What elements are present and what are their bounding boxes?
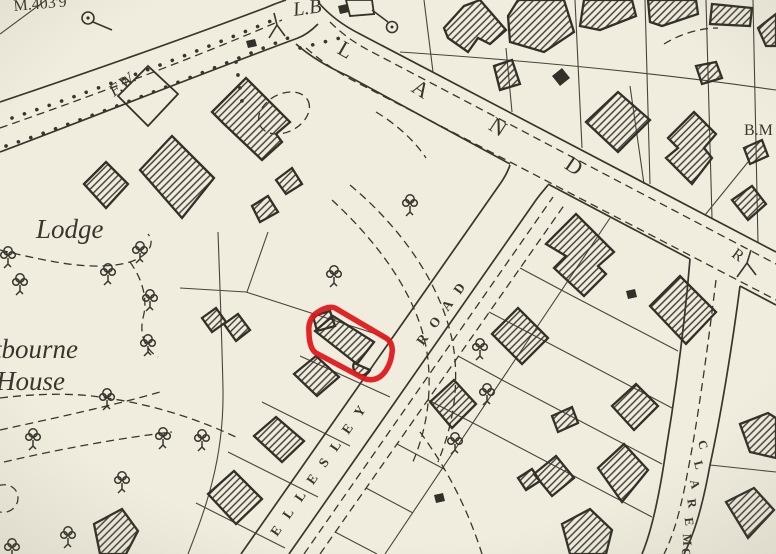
road-name-letter: R xyxy=(728,245,747,265)
road-name-letter: E xyxy=(682,517,697,527)
buildings-east-of-wellesley xyxy=(430,186,776,554)
buildings-west-of-wellesley xyxy=(94,308,339,554)
road-name-letter: R xyxy=(684,498,699,510)
footway-label: F.W. xyxy=(104,67,140,100)
north-plot-boundary-lines xyxy=(0,0,776,243)
road-name-letter: M xyxy=(680,534,695,547)
road-name-letter: L xyxy=(691,459,707,471)
benchmark-right-label: B.M xyxy=(744,122,773,139)
road-name-letter: N xyxy=(485,112,512,142)
road-name-letter: A xyxy=(687,478,703,490)
buildings-north xyxy=(444,0,776,184)
lamp-post-icon xyxy=(372,10,398,33)
wellesley-road-name: ELLESLEY xyxy=(267,393,375,539)
benchmark-arrow-icon xyxy=(269,13,285,38)
labels-layer: M.403'9 L.B F.W. Lodge tbourne House B.M… xyxy=(0,0,773,554)
road-name-letter: D xyxy=(561,151,588,181)
lodge-label: Lodge xyxy=(35,214,104,244)
lamp-post-icon xyxy=(82,12,112,30)
road-name-letter: A xyxy=(408,74,435,104)
road-name-letter: O xyxy=(679,548,693,554)
road-name-letter: C xyxy=(695,438,711,451)
letter-box-label: L.B xyxy=(291,0,323,21)
benchmark-value-label: M.403'9 xyxy=(13,0,67,15)
map-svg: M.403'9 L.B F.W. Lodge tbourne House B.M… xyxy=(0,0,776,554)
house-name-line1: tbourne xyxy=(0,334,78,364)
wellesley-road-west-edge xyxy=(241,165,510,554)
wellesley-road-word: ROAD xyxy=(413,271,474,348)
house-name-line2: House xyxy=(0,366,65,396)
historic-map-canvas: M.403'9 L.B F.W. Lodge tbourne House B.M… xyxy=(0,0,776,554)
